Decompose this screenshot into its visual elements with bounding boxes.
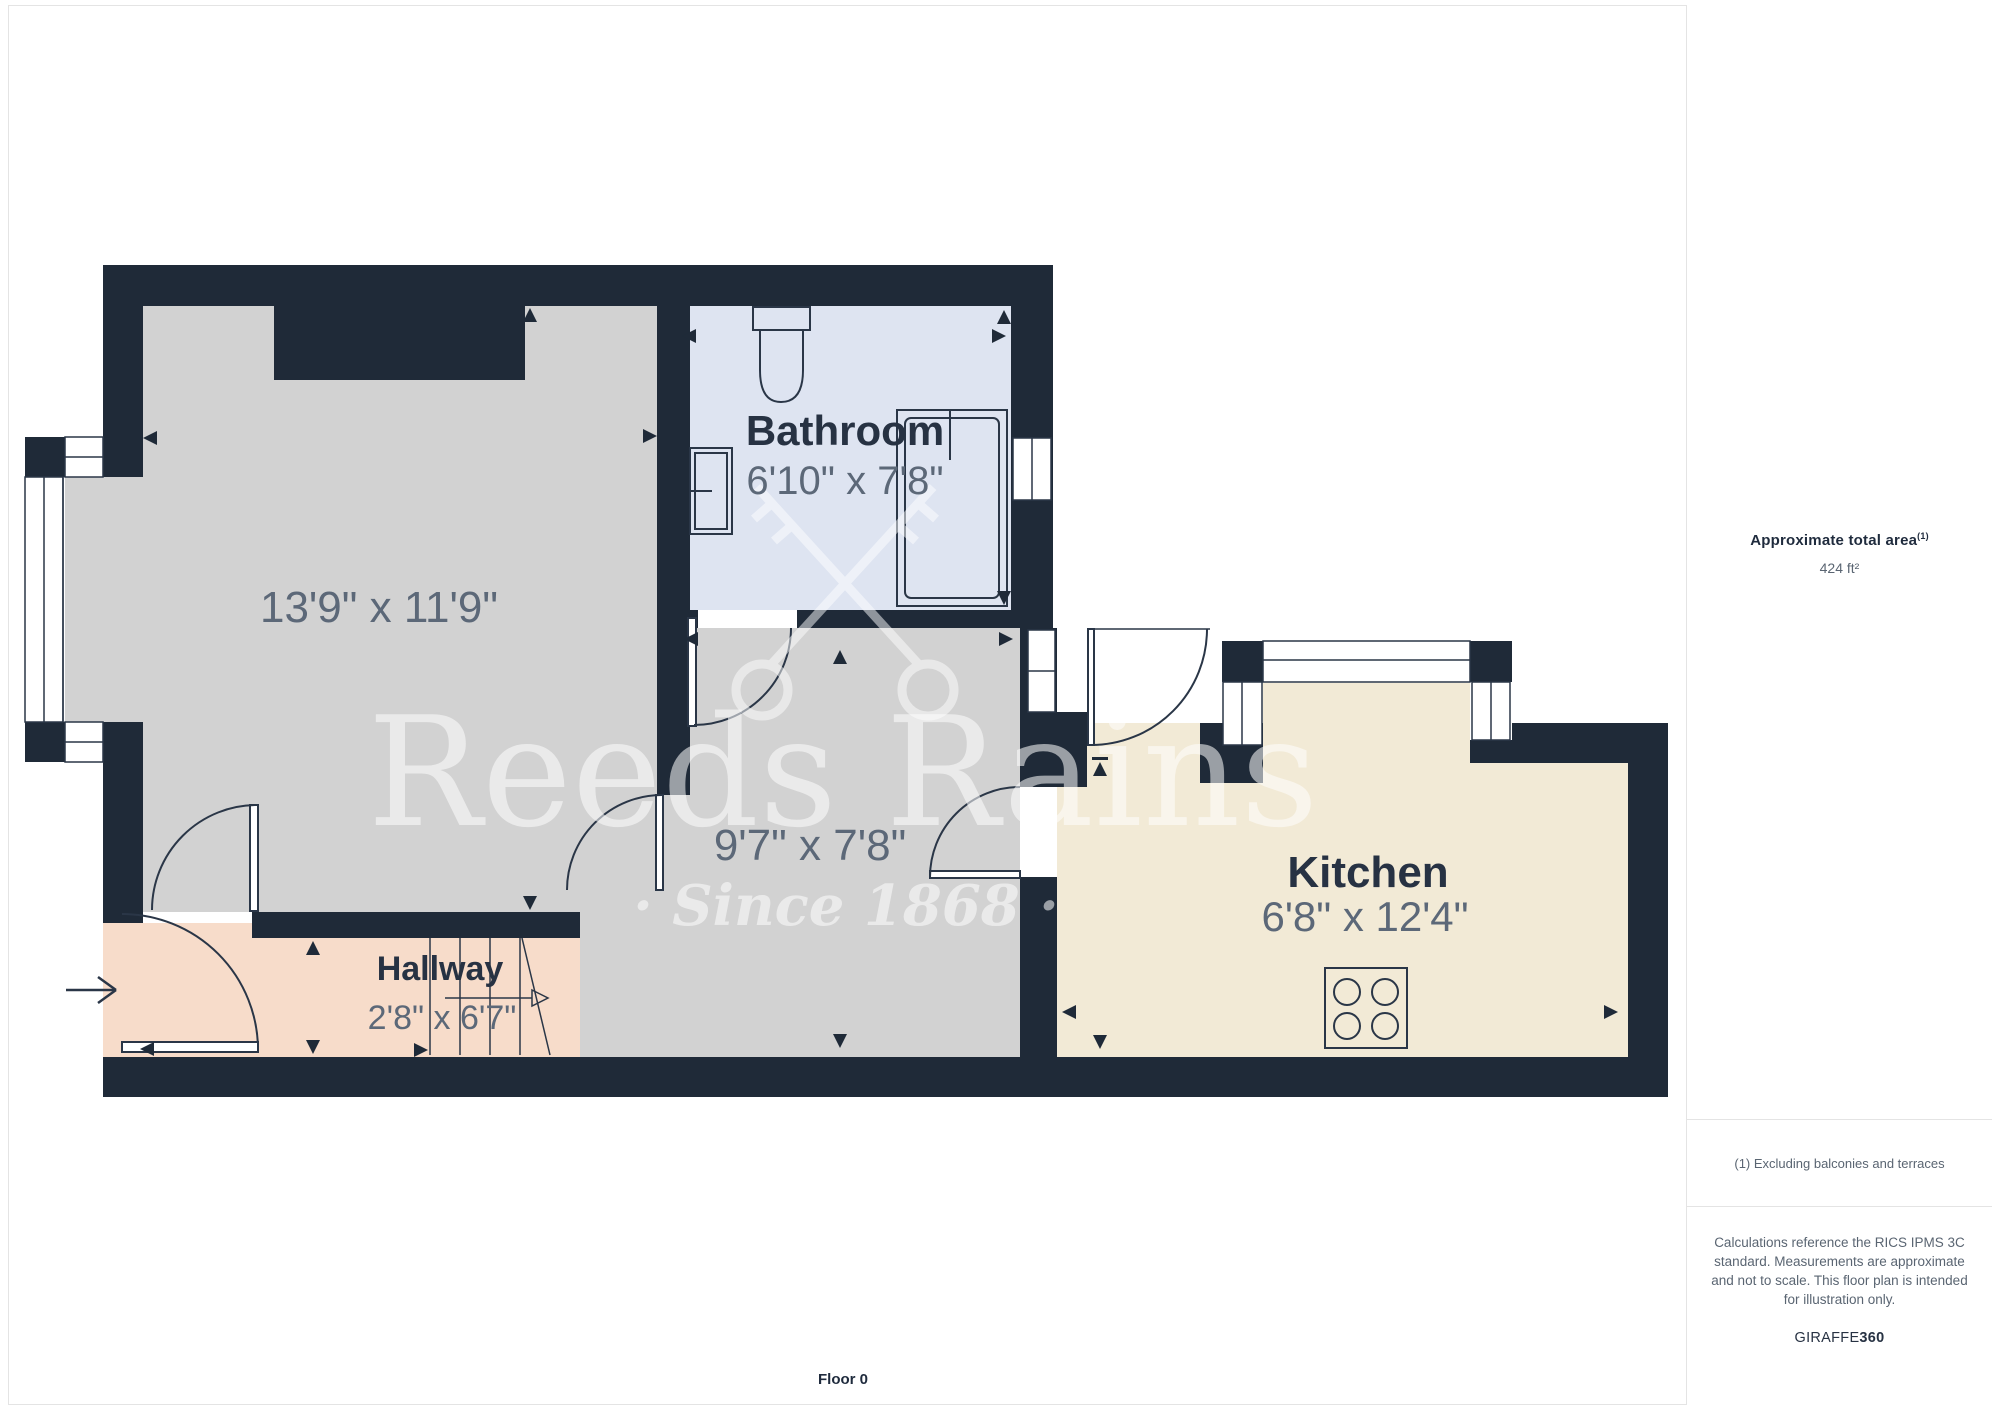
floorplan-page: Reeds Rains · Since 1868 · 13'9" x 11'9"… — [0, 0, 2000, 1414]
total-area-superscript: (1) — [1917, 531, 1929, 541]
disclaimer-text: Calculations reference the RICS IPMS 3C … — [1706, 1233, 1974, 1309]
kitchen-name: Kitchen — [1287, 848, 1448, 897]
hallway-dims: 2'8" x 6'7" — [368, 999, 517, 1037]
bathroom-window — [1013, 438, 1051, 500]
footnote-section: (1) Excluding balconies and terraces — [1687, 1119, 1992, 1207]
hob-fixture — [1325, 968, 1407, 1048]
total-area-label: Approximate total area(1) — [1687, 531, 1992, 549]
watermark-tagline: · Since 1868 · — [633, 873, 1059, 939]
brand-suffix: 360 — [1859, 1330, 1884, 1346]
hallway-name: Hallway — [377, 950, 504, 988]
info-sidebar: Approximate total area(1) 424 ft² (1) Ex… — [1686, 5, 1992, 1405]
total-area-text: Approximate total area — [1750, 532, 1917, 549]
bathroom-name: Bathroom — [746, 407, 944, 454]
room-bathroom — [690, 306, 1011, 610]
living-dims: 13'9" x 11'9" — [260, 583, 498, 632]
middle-room-dims: 9'7" x 7'8" — [714, 821, 906, 870]
brand-name: GIRAFFE — [1794, 1330, 1859, 1346]
kitchen-dims: 6'8" x 12'4" — [1262, 893, 1469, 940]
footnote-text: (1) Excluding balconies and terraces — [1734, 1156, 1944, 1171]
disclaimer-section: Calculations reference the RICS IPMS 3C … — [1687, 1207, 1992, 1346]
total-area-block: Approximate total area(1) 424 ft² — [1687, 531, 1992, 576]
bathroom-dims: 6'10" x 7'8" — [746, 459, 943, 503]
giraffe360-logo: GIRAFFE360 — [1687, 1330, 1992, 1346]
floor-label: Floor 0 — [0, 1371, 1686, 1388]
total-area-value: 424 ft² — [1687, 560, 1992, 576]
